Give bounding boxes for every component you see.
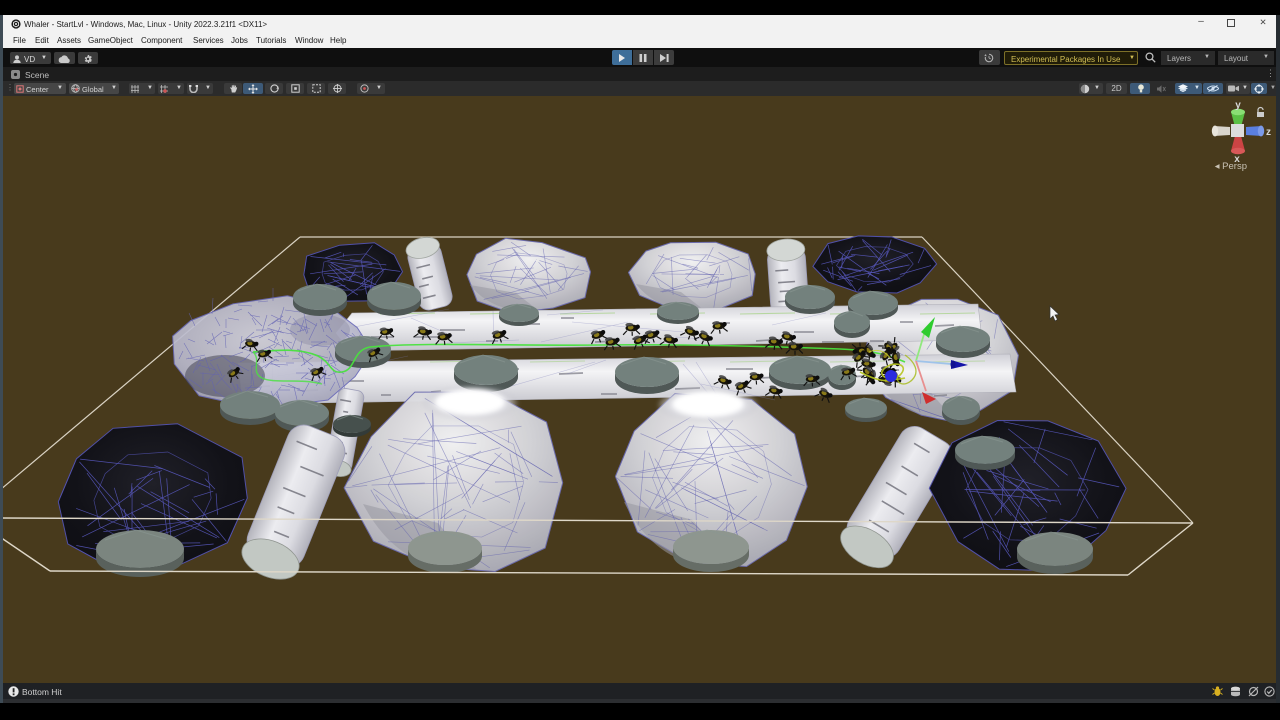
- svg-text:y: y: [1235, 100, 1241, 111]
- svg-text:z: z: [1266, 127, 1271, 138]
- svg-text:◂ Persp: ◂ Persp: [1215, 161, 1247, 172]
